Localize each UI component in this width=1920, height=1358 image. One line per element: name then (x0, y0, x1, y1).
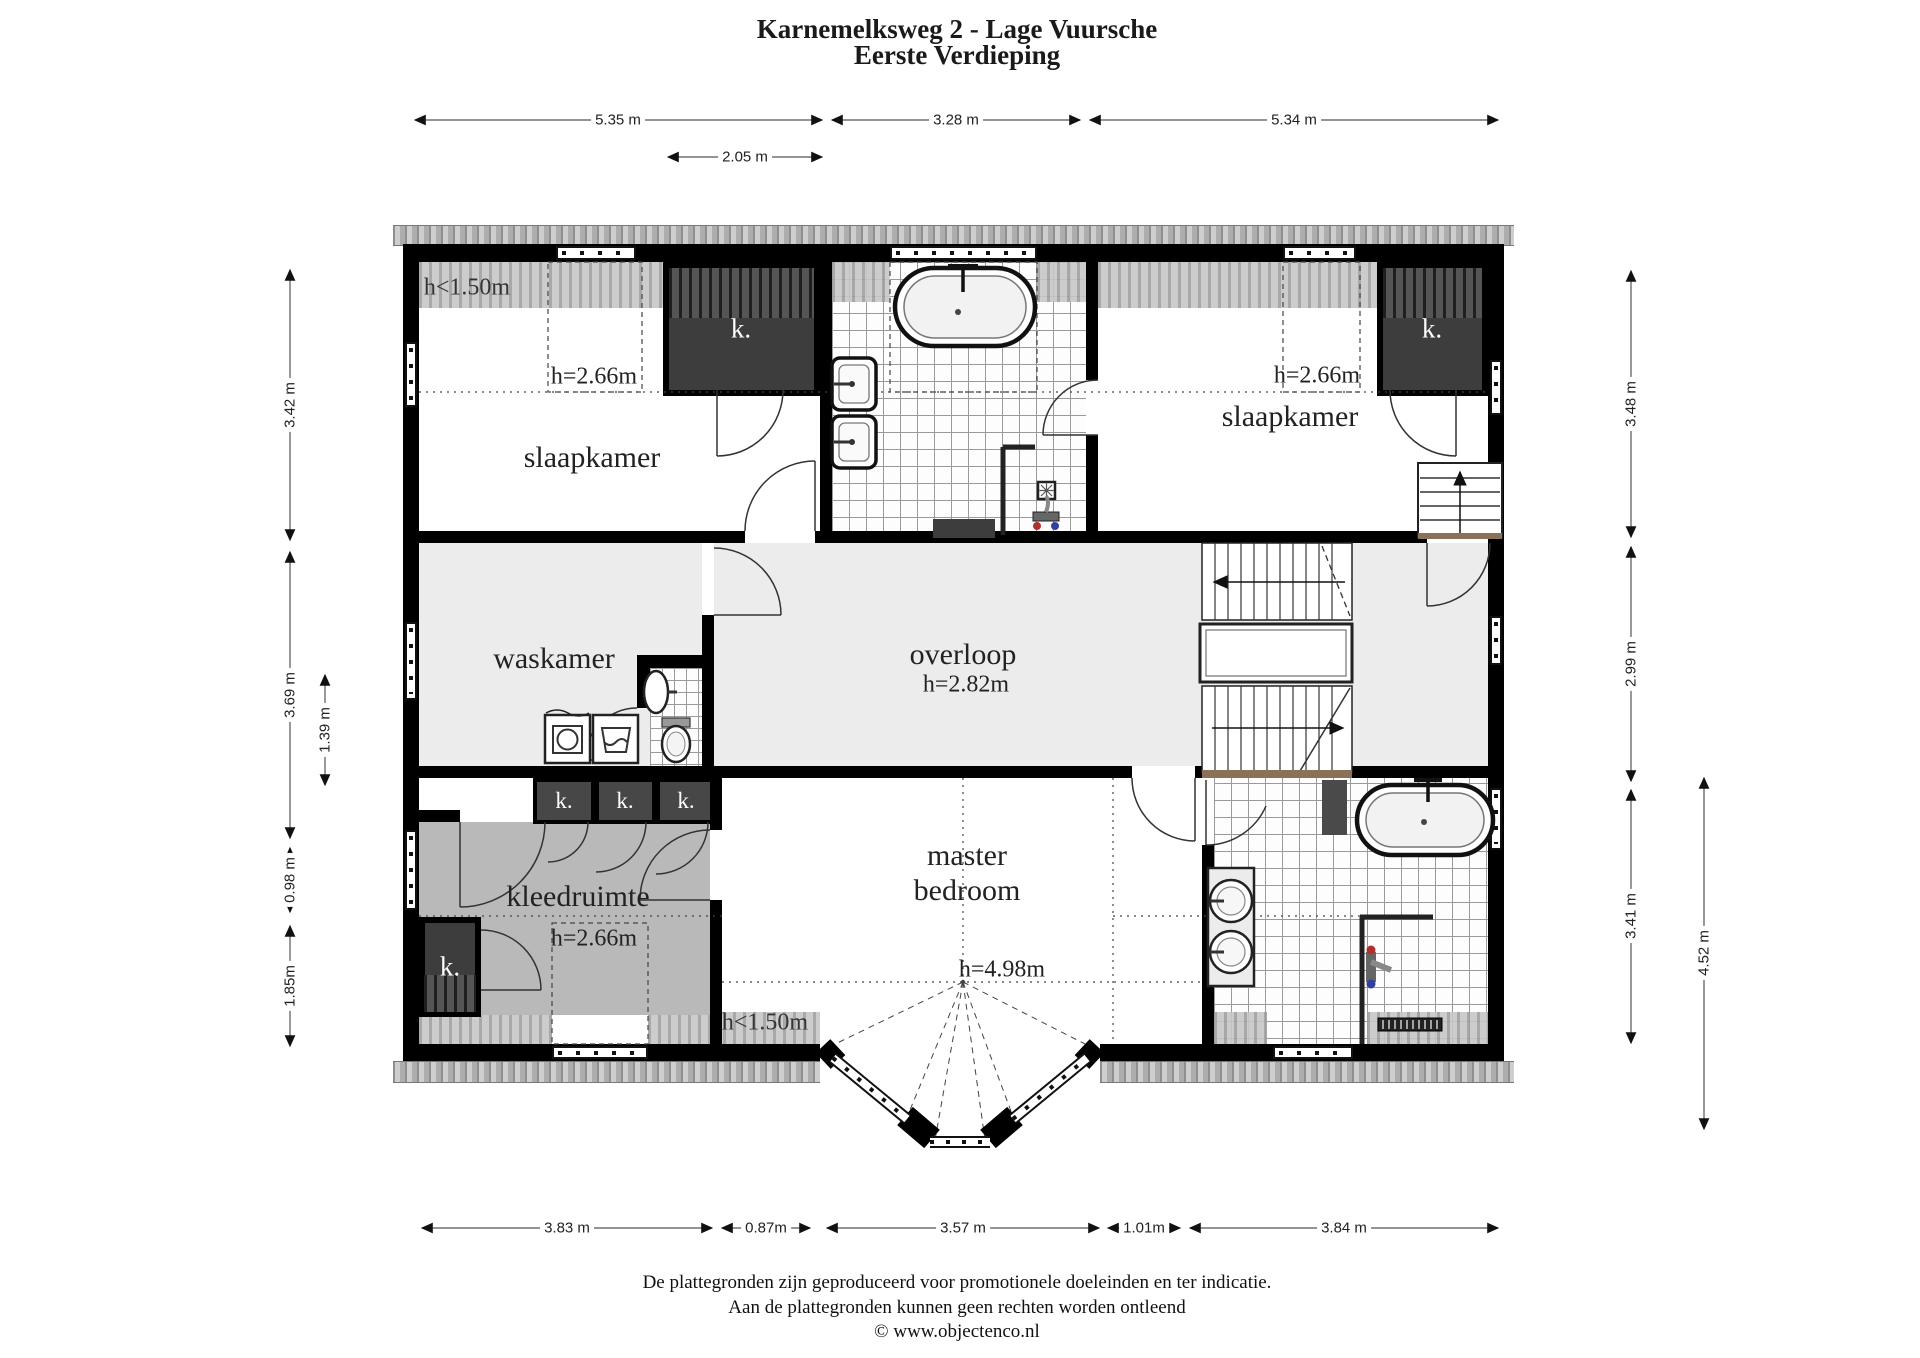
label-closet-top-right: k. (1422, 314, 1442, 345)
washing-machine (545, 710, 590, 763)
shower-drain (1378, 1018, 1442, 1031)
label-low-headroom-bottom: h<1.50m (722, 1010, 808, 1037)
dim-bottom-1: 3.83 m (540, 1220, 594, 1237)
door-bathroom-top (1043, 380, 1098, 435)
dim-right-3: 3.41 m (1623, 889, 1640, 943)
label-dormer-height-kleedruimte: h=2.66m (551, 926, 637, 953)
label-waskamer: waskamer (493, 642, 615, 676)
dim-bottom-2: 0.87m (741, 1220, 791, 1237)
staircase (1200, 463, 1502, 778)
shower-master (1360, 917, 1442, 1044)
label-closet-top-left: k. (731, 314, 751, 345)
dim-right-4: 4.52 m (1696, 926, 1713, 980)
sink-top-2 (832, 416, 876, 468)
dim-bottom-4: 1.01m (1119, 1220, 1169, 1237)
door-master-bedroom (1132, 778, 1195, 841)
label-kleedruimte: kleedruimte (506, 880, 649, 914)
door-slaapkamer-left (745, 461, 815, 531)
dim-top-3: 5.34 m (1267, 112, 1321, 129)
floorplan-page: Karnemelksweg 2 - Lage Vuursche Eerste V… (0, 0, 1920, 1358)
label-closet-k1: k. (555, 788, 572, 814)
toilet (662, 718, 690, 762)
label-low-headroom-top: h<1.50m (424, 275, 510, 302)
vanity-master (1208, 868, 1254, 986)
door-closet-k1 (548, 822, 588, 862)
label-overloop-height: h=2.82m (923, 672, 1009, 699)
door-kleedruimte-bedroom (640, 830, 710, 900)
dim-left-1: 3.42 m (282, 378, 299, 432)
dim-top-1: 5.35 m (591, 112, 645, 129)
label-closet-k3: k. (677, 788, 694, 814)
door-closet-k2 (596, 822, 646, 872)
label-master-1: master (927, 839, 1007, 873)
stair-void-railing (1200, 624, 1352, 682)
radiator-top-bath (933, 519, 995, 538)
label-closet-k2: k. (616, 788, 633, 814)
label-dormer-height-left: h=2.66m (551, 364, 637, 391)
radiator-master-bath (1322, 780, 1347, 835)
dim-right-2: 2.99 m (1623, 637, 1640, 691)
dim-bottom-3: 3.57 m (936, 1220, 990, 1237)
label-closet-bottom-left: k. (440, 952, 460, 983)
label-slaapkamer-left: slaapkamer (524, 441, 661, 475)
dim-top-inner: 2.05 m (718, 149, 772, 166)
door-closet-top-right (1390, 390, 1456, 456)
bathtub-master (1357, 778, 1493, 855)
attic-stair (1418, 463, 1502, 539)
dim-bottom-5: 3.84 m (1317, 1220, 1371, 1237)
dim-left-5: 1.85m (282, 961, 299, 1011)
shower-top (1003, 447, 1059, 535)
bay-window (823, 1046, 1097, 1142)
dim-right-1: 3.48 m (1623, 377, 1640, 431)
label-slaapkamer-right: slaapkamer (1222, 400, 1359, 434)
dim-left-4: 0.98 m (282, 853, 299, 907)
door-closet-bottom-left (481, 930, 541, 990)
dim-top-2: 3.28 m (929, 112, 983, 129)
bathtub-top (895, 264, 1035, 346)
dim-left-3: 1.39 m (317, 703, 334, 757)
dim-left-2: 3.69 m (282, 668, 299, 722)
bay-window-glazing (833, 1058, 1087, 1142)
door-slaapkamer-right (1427, 543, 1490, 606)
sink-toilet-room (644, 671, 677, 713)
label-dormer-height-right: h=2.66m (1274, 363, 1360, 390)
door-closet-top-left (717, 390, 783, 456)
laundry-sink (593, 715, 638, 763)
label-master-height: h=4.98m (959, 957, 1045, 984)
door-master-bathroom (1206, 780, 1266, 845)
door-waskamer (714, 548, 781, 615)
sink-top-1 (832, 358, 876, 410)
label-overloop: overloop (910, 638, 1017, 672)
label-master-2: bedroom (914, 874, 1021, 908)
